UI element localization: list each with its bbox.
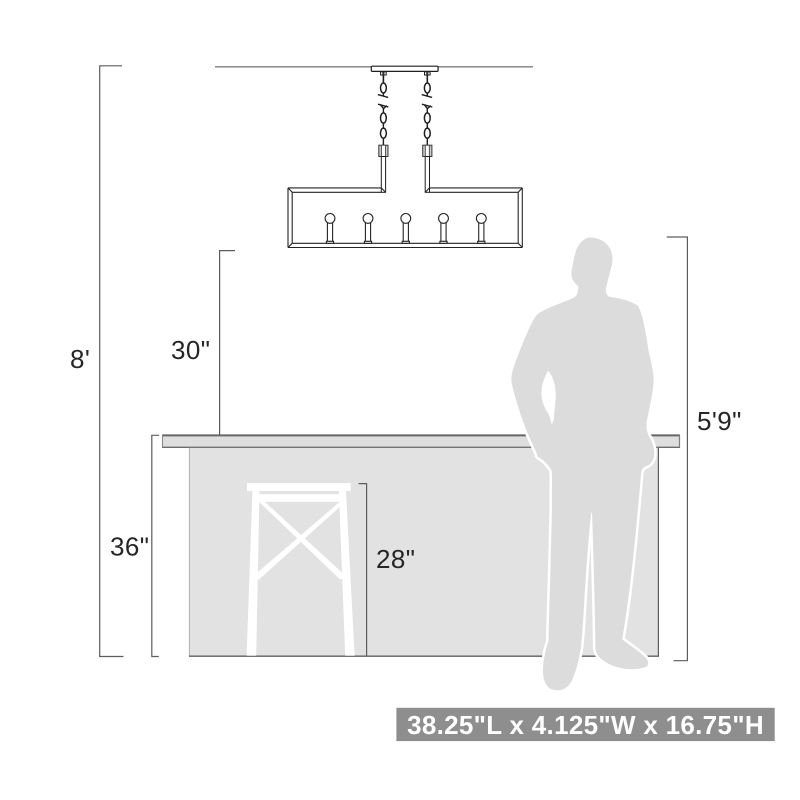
svg-text:36": 36" [110,532,149,562]
svg-text:8': 8' [70,344,90,374]
svg-text:28": 28" [376,544,415,574]
svg-text:38.25"L x 4.125"W x 16.75"H: 38.25"L x 4.125"W x 16.75"H [407,710,764,740]
svg-text:5'9": 5'9" [697,406,742,436]
svg-text:30": 30" [171,335,210,365]
